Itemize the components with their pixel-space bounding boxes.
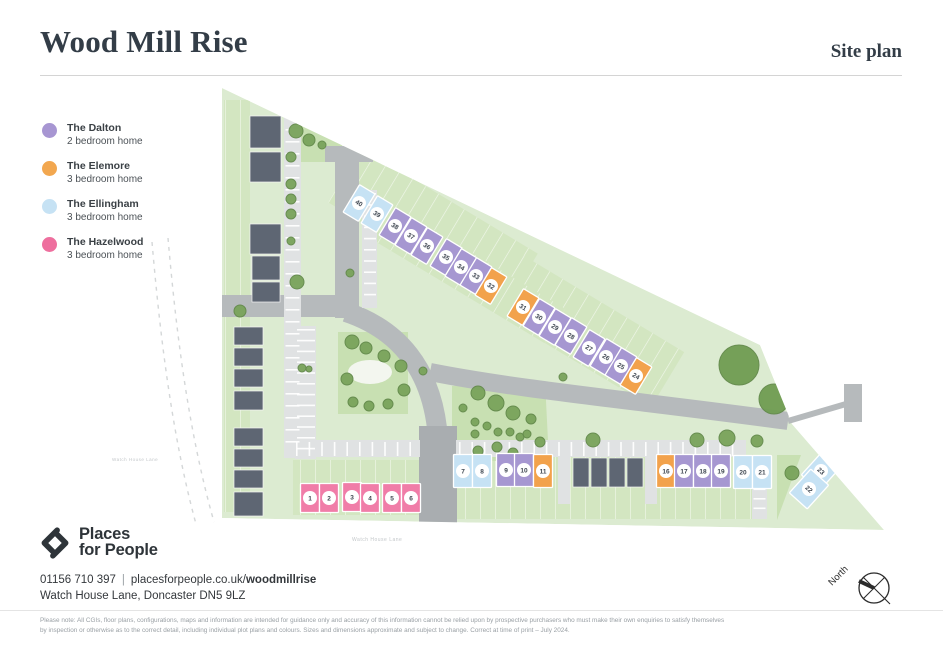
tree-icon [318, 141, 326, 149]
phone-number: 01156 710 397 [40, 574, 116, 586]
plot-number: 10 [520, 467, 528, 474]
plot-number: 19 [717, 468, 725, 475]
plot-8: 8 [473, 455, 492, 488]
tree-icon [526, 414, 536, 424]
existing-building [250, 116, 281, 148]
tree-icon [286, 209, 296, 219]
tree-icon [289, 124, 303, 138]
plot-1: 1 [301, 484, 320, 513]
plot-16: 16 [657, 455, 676, 488]
existing-building [573, 458, 589, 487]
legend-item-dalton: The Dalton 2 bedroom home [42, 122, 202, 147]
plot-10: 10 [515, 454, 534, 487]
home-type-name: The Ellingham [67, 198, 143, 210]
tree-icon [286, 152, 296, 162]
plot-number: 9 [504, 467, 508, 474]
website-url-bold: woodmillrise [246, 574, 316, 586]
existing-building [234, 348, 263, 366]
tree-icon [559, 373, 567, 381]
plot-11: 11 [534, 455, 553, 488]
tree-icon [286, 179, 296, 189]
site-plan-page: Wood Mill Rise Site plan 403938373635343… [0, 0, 943, 646]
places-for-people-mark-icon [40, 527, 70, 559]
plot-number: 2 [327, 495, 331, 502]
ellingham-swatch-icon [42, 199, 57, 214]
tree-icon [471, 386, 485, 400]
existing-building [250, 224, 281, 254]
tree-icon [494, 428, 502, 436]
plot-18: 18 [694, 455, 713, 488]
tree-icon [286, 194, 296, 204]
plot-20: 20 [734, 456, 753, 489]
tree-icon [378, 350, 390, 362]
plot-number: 21 [758, 469, 766, 476]
existing-building [234, 428, 263, 446]
tree-icon [419, 367, 427, 375]
home-type-desc: 3 bedroom home [67, 212, 143, 223]
tree-icon [306, 366, 312, 372]
address-line: Watch House Lane, Doncaster DN5 9LZ [40, 590, 245, 602]
tree-icon [488, 395, 504, 411]
tree-icon [290, 275, 304, 289]
home-type-desc: 3 bedroom home [67, 174, 143, 185]
tree-icon [690, 433, 704, 447]
home-type-name: The Hazelwood [67, 236, 143, 248]
existing-building [627, 458, 643, 487]
logo-line2: for People [79, 543, 158, 559]
tree-icon [287, 237, 295, 245]
tree-icon [719, 345, 759, 385]
logo-text: Places for People [79, 527, 158, 558]
tree-icon [492, 442, 502, 452]
plot-number: 6 [409, 495, 413, 502]
disclaimer-text: Please note: All CGIs, floor plans, conf… [40, 616, 730, 637]
footer-divider [0, 610, 943, 611]
plot-number: 5 [390, 495, 394, 502]
plot-21: 21 [753, 456, 772, 489]
tree-icon [348, 397, 358, 407]
existing-building [234, 369, 263, 387]
plot-number: 3 [350, 494, 354, 501]
tree-icon [345, 335, 359, 349]
existing-building [234, 391, 263, 410]
tree-icon [506, 428, 514, 436]
tree-icon [341, 373, 353, 385]
existing-building [234, 470, 263, 488]
existing-building [591, 458, 607, 487]
street-label: Watch House Lane [352, 537, 402, 543]
legend-item-hazelwood: The Hazelwood 3 bedroom home [42, 236, 202, 261]
tree-icon [483, 422, 491, 430]
existing-building [250, 152, 281, 182]
legend: The Dalton 2 bedroom home The Elemore 3 … [42, 122, 202, 274]
home-type-desc: 2 bedroom home [67, 136, 143, 147]
plot-number: 20 [739, 469, 747, 476]
plot-number: 8 [480, 468, 484, 475]
tree-icon [471, 418, 479, 426]
elemore-swatch-icon [42, 161, 57, 176]
tree-icon [360, 342, 372, 354]
hazelwood-swatch-icon [42, 237, 57, 252]
plot-7: 7 [454, 455, 473, 488]
plot-number: 11 [540, 468, 547, 475]
tree-icon [506, 406, 520, 420]
plot-6: 6 [402, 484, 421, 513]
contact-line: 01156 710 397|placesforpeople.co.uk/wood… [40, 574, 316, 586]
north-label: North [826, 564, 850, 588]
north-compass-icon: North [826, 564, 890, 604]
plot-number: 7 [461, 468, 465, 475]
plot-4: 4 [361, 484, 380, 513]
places-for-people-logo: Places for People [40, 527, 158, 559]
plot-number: 1 [308, 495, 312, 502]
existing-building [609, 458, 625, 487]
tree-icon [535, 437, 545, 447]
plot-3: 3 [343, 483, 362, 512]
legend-item-elemore: The Elemore 3 bedroom home [42, 160, 202, 185]
tree-icon [719, 430, 735, 446]
tree-icon [785, 466, 799, 480]
dalton-swatch-icon [42, 123, 57, 138]
existing-building [252, 282, 280, 302]
plot-5: 5 [383, 484, 402, 513]
plot-19: 19 [712, 455, 731, 488]
website-url: placesforpeople.co.uk/ [131, 574, 246, 586]
home-type-name: The Elemore [67, 160, 143, 172]
separator: | [116, 574, 131, 586]
plot-9: 9 [497, 454, 516, 487]
plot-number: 18 [699, 468, 707, 475]
tree-icon [459, 404, 467, 412]
tree-icon [751, 435, 763, 447]
existing-building [252, 256, 280, 280]
tree-icon [398, 384, 410, 396]
tree-icon [303, 134, 315, 146]
tree-icon [586, 433, 600, 447]
plot-17: 17 [675, 455, 694, 488]
plot-number: 17 [680, 468, 688, 475]
home-type-name: The Dalton [67, 122, 143, 134]
tree-icon [364, 401, 374, 411]
tree-icon [395, 360, 407, 372]
tree-icon [523, 430, 531, 438]
tree-icon [759, 384, 789, 414]
existing-building [234, 492, 263, 516]
tree-icon [471, 430, 479, 438]
tree-icon [234, 305, 246, 317]
plot-2: 2 [320, 484, 339, 513]
existing-building [234, 327, 263, 345]
tree-icon [298, 364, 306, 372]
plot-number: 4 [368, 495, 372, 502]
tree-icon [346, 269, 354, 277]
plot-number: 16 [662, 468, 670, 475]
street-label: Watch House Lane [112, 457, 158, 462]
tree-icon [383, 399, 393, 409]
existing-building [234, 449, 263, 467]
legend-item-ellingham: The Ellingham 3 bedroom home [42, 198, 202, 223]
home-type-desc: 3 bedroom home [67, 250, 143, 261]
